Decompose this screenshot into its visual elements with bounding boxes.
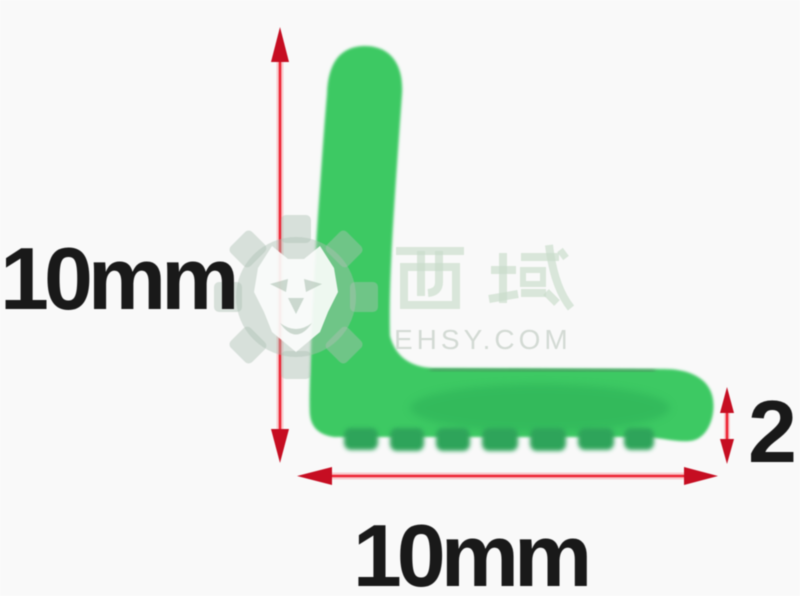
thickness-arrow (720, 387, 734, 464)
watermark-site-text: EHSY.COM (394, 324, 572, 355)
product-dimension-diagram: EHSY.COM 10mm 10mm 2 (0, 0, 800, 596)
width-arrowhead-right (684, 467, 718, 485)
l-profile-top-shadow (430, 369, 655, 371)
thickness-arrowhead-top (720, 387, 734, 413)
watermark-cjk-text (396, 245, 571, 308)
l-profile-shading (410, 384, 670, 432)
height-arrowhead-bottom (271, 429, 289, 463)
height-dimension-label: 10mm (0, 235, 234, 323)
l-profile-shape (310, 46, 714, 451)
l-profile-body (310, 46, 714, 441)
height-arrowhead-top (271, 27, 289, 62)
width-arrow (297, 467, 718, 485)
thickness-arrowhead-bottom (720, 439, 734, 464)
gear-lion-logo-icon (214, 215, 378, 379)
width-arrowhead-left (297, 467, 332, 485)
width-dimension-label: 10mm (353, 512, 587, 596)
thickness-dimension-label: 2 (748, 388, 797, 476)
